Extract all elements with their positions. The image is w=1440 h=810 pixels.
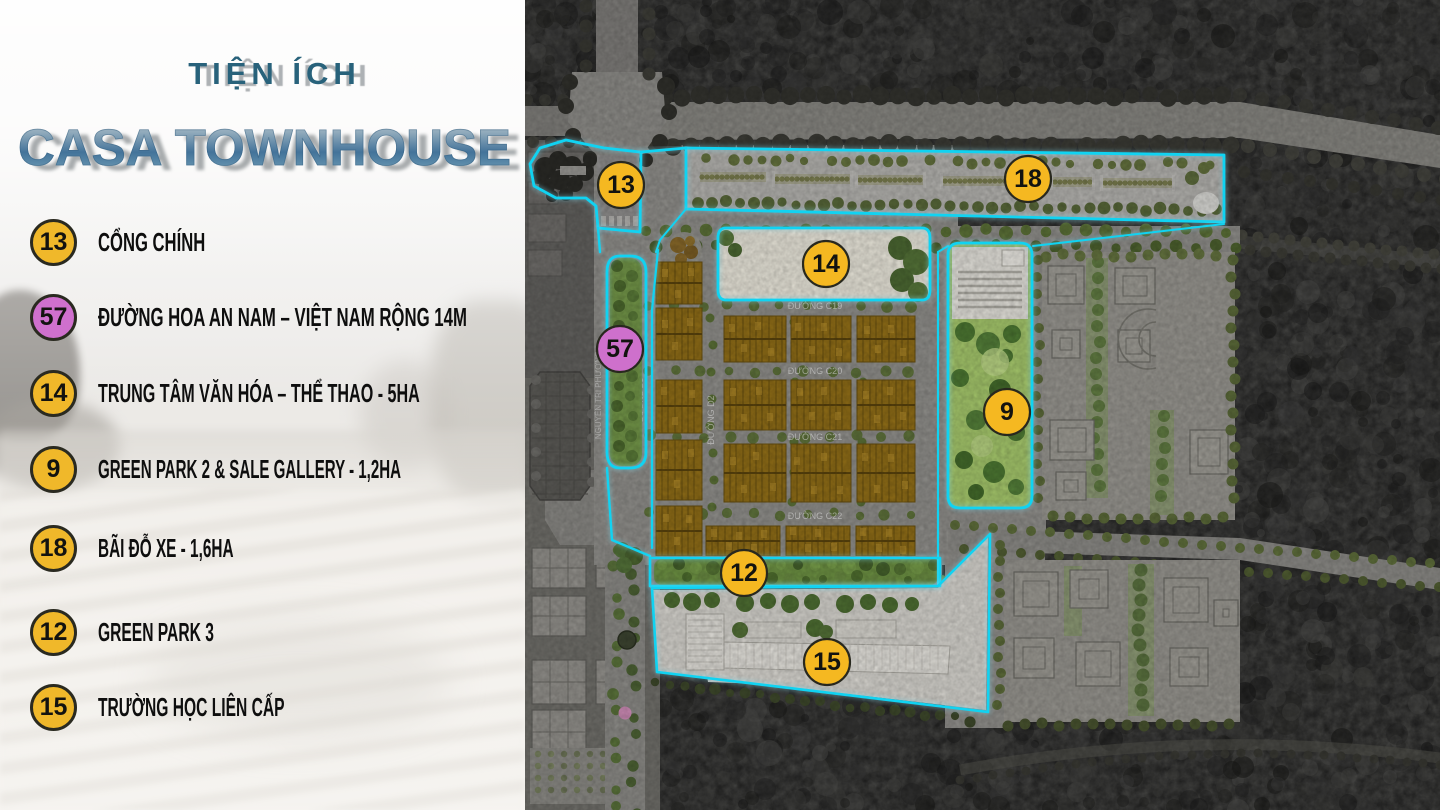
svg-text:9: 9 xyxy=(1000,398,1014,426)
svg-text:18: 18 xyxy=(1014,165,1042,193)
svg-text:57: 57 xyxy=(606,335,634,363)
svg-text:15: 15 xyxy=(813,648,841,676)
svg-text:14: 14 xyxy=(812,250,840,278)
svg-text:13: 13 xyxy=(607,171,635,199)
svg-text:12: 12 xyxy=(730,559,758,587)
